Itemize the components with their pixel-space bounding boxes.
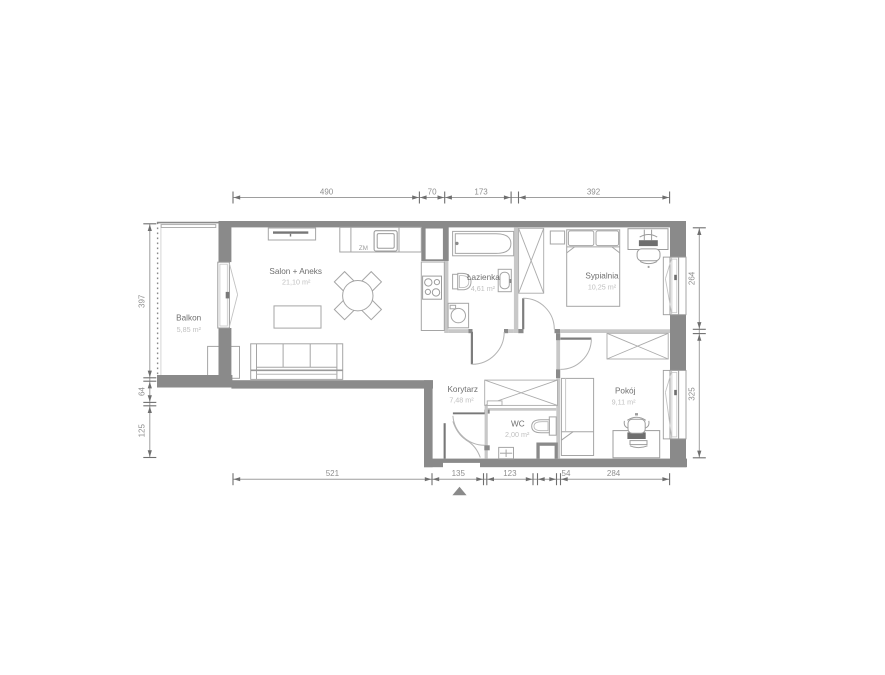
svg-text:7,48 m²: 7,48 m² bbox=[449, 396, 474, 405]
svg-text:64: 64 bbox=[138, 387, 147, 396]
svg-text:490: 490 bbox=[320, 187, 334, 196]
svg-text:135: 135 bbox=[452, 469, 466, 478]
svg-text:Salon + Aneks: Salon + Aneks bbox=[269, 267, 322, 276]
svg-text:Pokój: Pokój bbox=[615, 387, 636, 396]
svg-text:392: 392 bbox=[587, 187, 601, 196]
svg-text:70: 70 bbox=[428, 187, 437, 196]
svg-text:Balkon: Balkon bbox=[176, 314, 201, 323]
svg-text:325: 325 bbox=[688, 387, 697, 401]
svg-text:173: 173 bbox=[474, 187, 488, 196]
svg-text:21,10 m²: 21,10 m² bbox=[282, 278, 311, 287]
svg-text:284: 284 bbox=[607, 469, 621, 478]
svg-text:2,00 m²: 2,00 m² bbox=[505, 430, 530, 439]
svg-text:397: 397 bbox=[138, 294, 147, 308]
svg-text:123: 123 bbox=[503, 469, 517, 478]
svg-text:264: 264 bbox=[688, 271, 697, 285]
svg-text:4,61 m²: 4,61 m² bbox=[471, 284, 496, 293]
svg-text:Sypialnia: Sypialnia bbox=[585, 272, 619, 281]
svg-text:9,11 m²: 9,11 m² bbox=[612, 398, 636, 407]
svg-text:521: 521 bbox=[326, 469, 340, 478]
svg-text:Korytarz: Korytarz bbox=[447, 385, 477, 394]
svg-text:5,85 m²: 5,85 m² bbox=[177, 325, 202, 334]
svg-text:WC: WC bbox=[511, 419, 525, 428]
svg-text:ZM: ZM bbox=[359, 245, 368, 252]
svg-text:54: 54 bbox=[562, 469, 571, 478]
svg-text:Łazienka: Łazienka bbox=[467, 273, 500, 282]
svg-text:125: 125 bbox=[138, 423, 147, 437]
svg-text:10,25 m²: 10,25 m² bbox=[588, 282, 617, 291]
